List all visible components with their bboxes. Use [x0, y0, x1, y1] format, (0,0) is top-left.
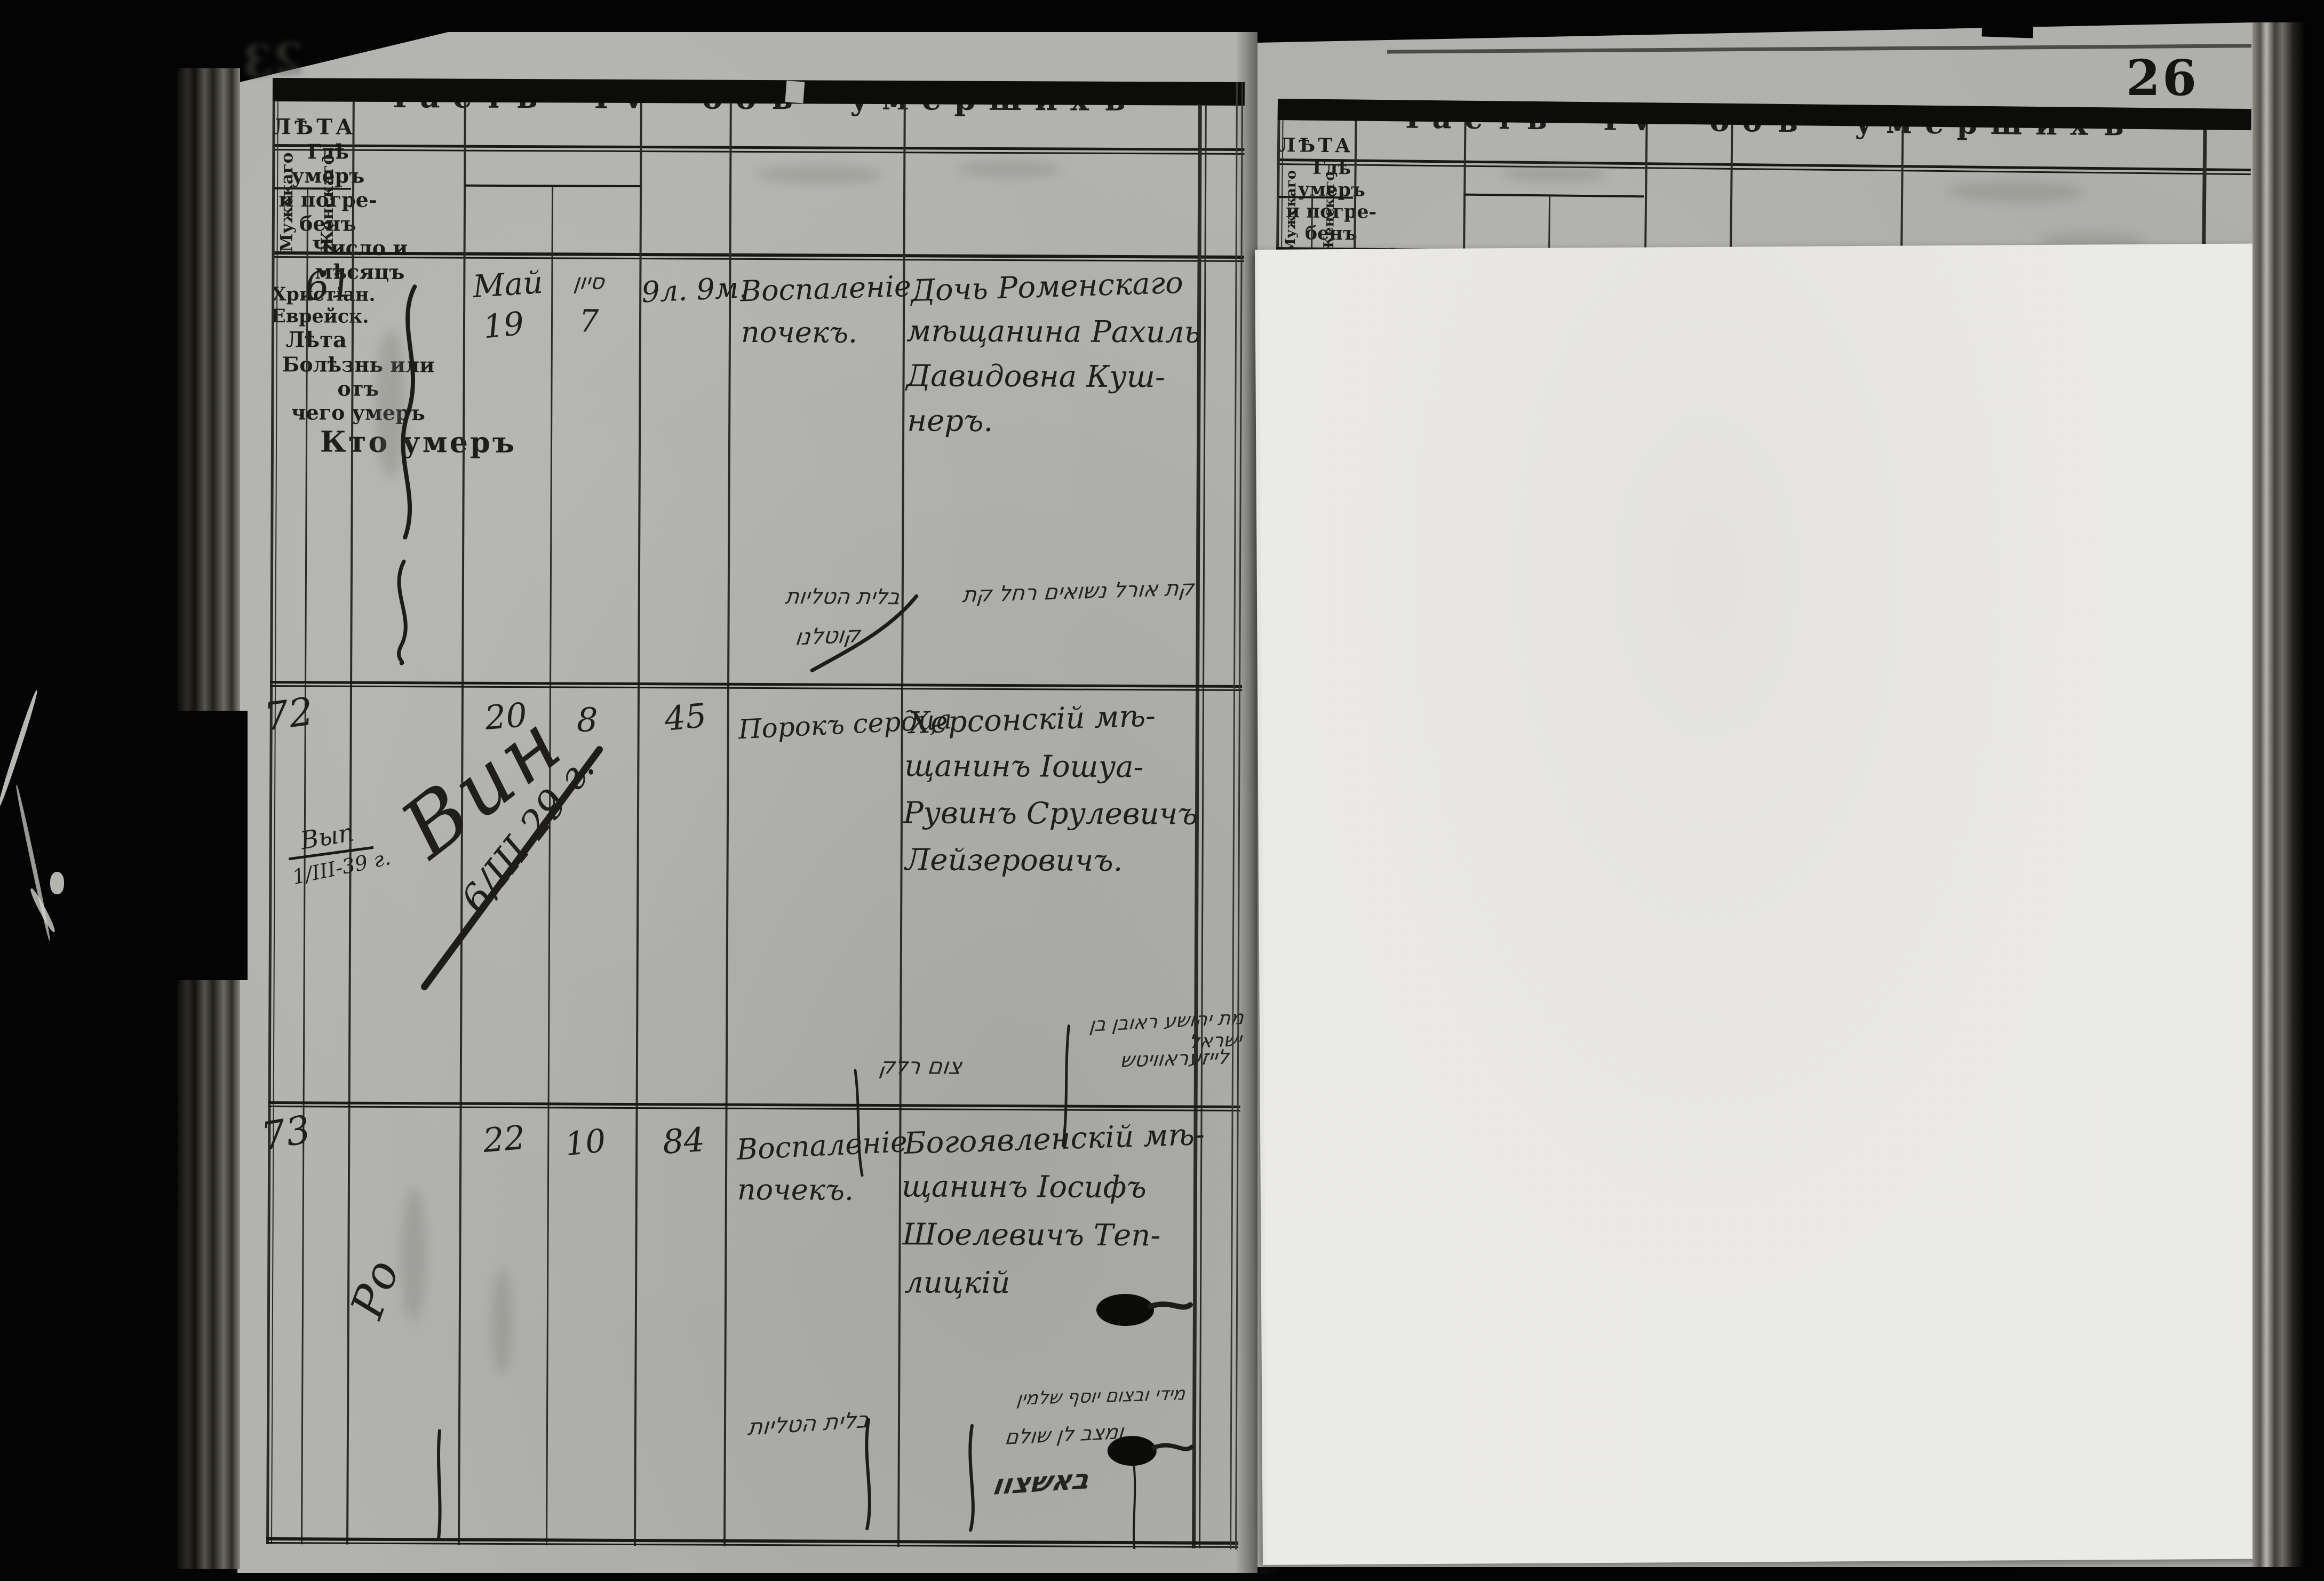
- who-died-2: щанинъ Іошуа-: [904, 749, 1143, 784]
- jewish-day: 10: [552, 1121, 619, 1165]
- book-scan: 23 Часть IV объ умершихъ ЛѢТА: [0, 0, 2324, 1581]
- where-died-note: Ро: [340, 1253, 409, 1325]
- top-tab-notch: [1981, 19, 2033, 38]
- who-died-3: Шоелевичъ Теп-: [902, 1217, 1160, 1253]
- who-died-2: щанинъ Іосифъ: [902, 1169, 1147, 1205]
- col-line: [1644, 124, 1648, 260]
- jewish-day: 8: [555, 700, 619, 740]
- who-died-3: Рувинъ Срулевичъ: [903, 796, 1198, 831]
- right-book-edge: [2253, 22, 2306, 1567]
- col-line: [1463, 122, 1467, 258]
- page-number: 26: [2126, 49, 2199, 107]
- who-died-2: мѣщанина Рахиль: [906, 314, 1200, 349]
- scratch-mark: [0, 689, 39, 809]
- record-number: 72: [261, 688, 317, 740]
- hebrew-annotation: צום רלק: [848, 1053, 964, 1079]
- christian-day: 20: [463, 694, 549, 740]
- who-died-1: Богоявленскій мѣ-: [903, 1117, 1205, 1161]
- christian-day: 19: [467, 304, 540, 348]
- christian-day: 22: [461, 1116, 547, 1162]
- col-line: [1730, 125, 1733, 261]
- hebrew-annotation: לייזעראוויטש: [1067, 1045, 1230, 1074]
- hebrew-annotation: בלית הטליות: [712, 1407, 870, 1443]
- who-died-4: Лейзеровичъ.: [905, 843, 1123, 878]
- table-top-rule: [273, 78, 1245, 106]
- cause-of-death-1: Воспаленіе: [736, 1125, 908, 1166]
- col-line: [1900, 126, 1904, 263]
- column-header-female: Женскаго: [1321, 201, 1344, 254]
- cause-of-death-1: Воспаленіе: [739, 269, 911, 308]
- who-died-1: Дочь Роменскаго: [910, 266, 1183, 309]
- column-header-age-group: ЛѢТА: [1277, 134, 1355, 157]
- hebrew-signature: באשצוו: [957, 1463, 1092, 1503]
- date-underline: [465, 185, 640, 187]
- jewish-month: סיון: [555, 269, 623, 294]
- column-header-male: Мужскаго: [1283, 200, 1306, 253]
- hebrew-annotation: ומצב לן שולם: [918, 1420, 1125, 1453]
- record-number: 61: [301, 260, 356, 309]
- cause-of-death-2: почекъ.: [741, 315, 858, 349]
- age-at-death: 45: [639, 693, 732, 741]
- age-at-death: 9л. 9м.: [641, 271, 732, 309]
- blank-cover-sheet: [1255, 244, 2264, 1565]
- record-number: 73: [257, 1107, 315, 1159]
- record-row-73: 73 Ро 22 10 84 Воспаленіе почекъ. Богояв…: [266, 1108, 1240, 1542]
- top-rule-gap: [785, 81, 805, 103]
- who-died-4: лицкій: [904, 1265, 1010, 1300]
- record-row-72: 72 Вин 6/ІІІ 29 г. Вып 1/ІІІ-39 г. 20 8 …: [268, 687, 1242, 1106]
- column-header-female: Женскаго: [318, 192, 343, 252]
- hebrew-annotation: בלית הטליות: [738, 584, 902, 609]
- death-register-table-right: Часть IV объ умершихъ ЛѢТА Мужскаго Женс…: [1276, 99, 2251, 269]
- christian-month: Май: [465, 264, 550, 305]
- hebrew-annotation: קת אורל נשואים רחל קת: [906, 576, 1195, 609]
- scratch-mark: [50, 872, 64, 894]
- jewish-day: 7: [557, 303, 621, 339]
- age-at-death: 84: [638, 1118, 729, 1163]
- record-row-61: 61 Май 19 סיון 7 9л. 9м. Воспаленіе поче…: [270, 258, 1244, 685]
- who-died-3: Давидовна Куш-: [906, 359, 1165, 394]
- date-underline: [1465, 194, 1644, 198]
- hebrew-annotation: מידי ובצום יוסף שלמין: [892, 1383, 1187, 1413]
- hebrew-annotation: קוטלנו: [740, 621, 862, 653]
- who-died-4: неръ.: [907, 403, 993, 439]
- who-died-1: Херсонскій мѣ-: [909, 698, 1156, 741]
- left-edge-clip: [175, 711, 248, 980]
- cause-of-death-2: почекъ.: [737, 1173, 854, 1207]
- column-header-male: Мужскаго: [277, 192, 302, 252]
- scratch-mark: [28, 887, 57, 934]
- column-header-age-group: ЛѢТА: [273, 114, 353, 140]
- death-register-table-left: Часть IV объ умершихъ ЛѢТА Мужскаго Женс…: [266, 78, 1245, 1550]
